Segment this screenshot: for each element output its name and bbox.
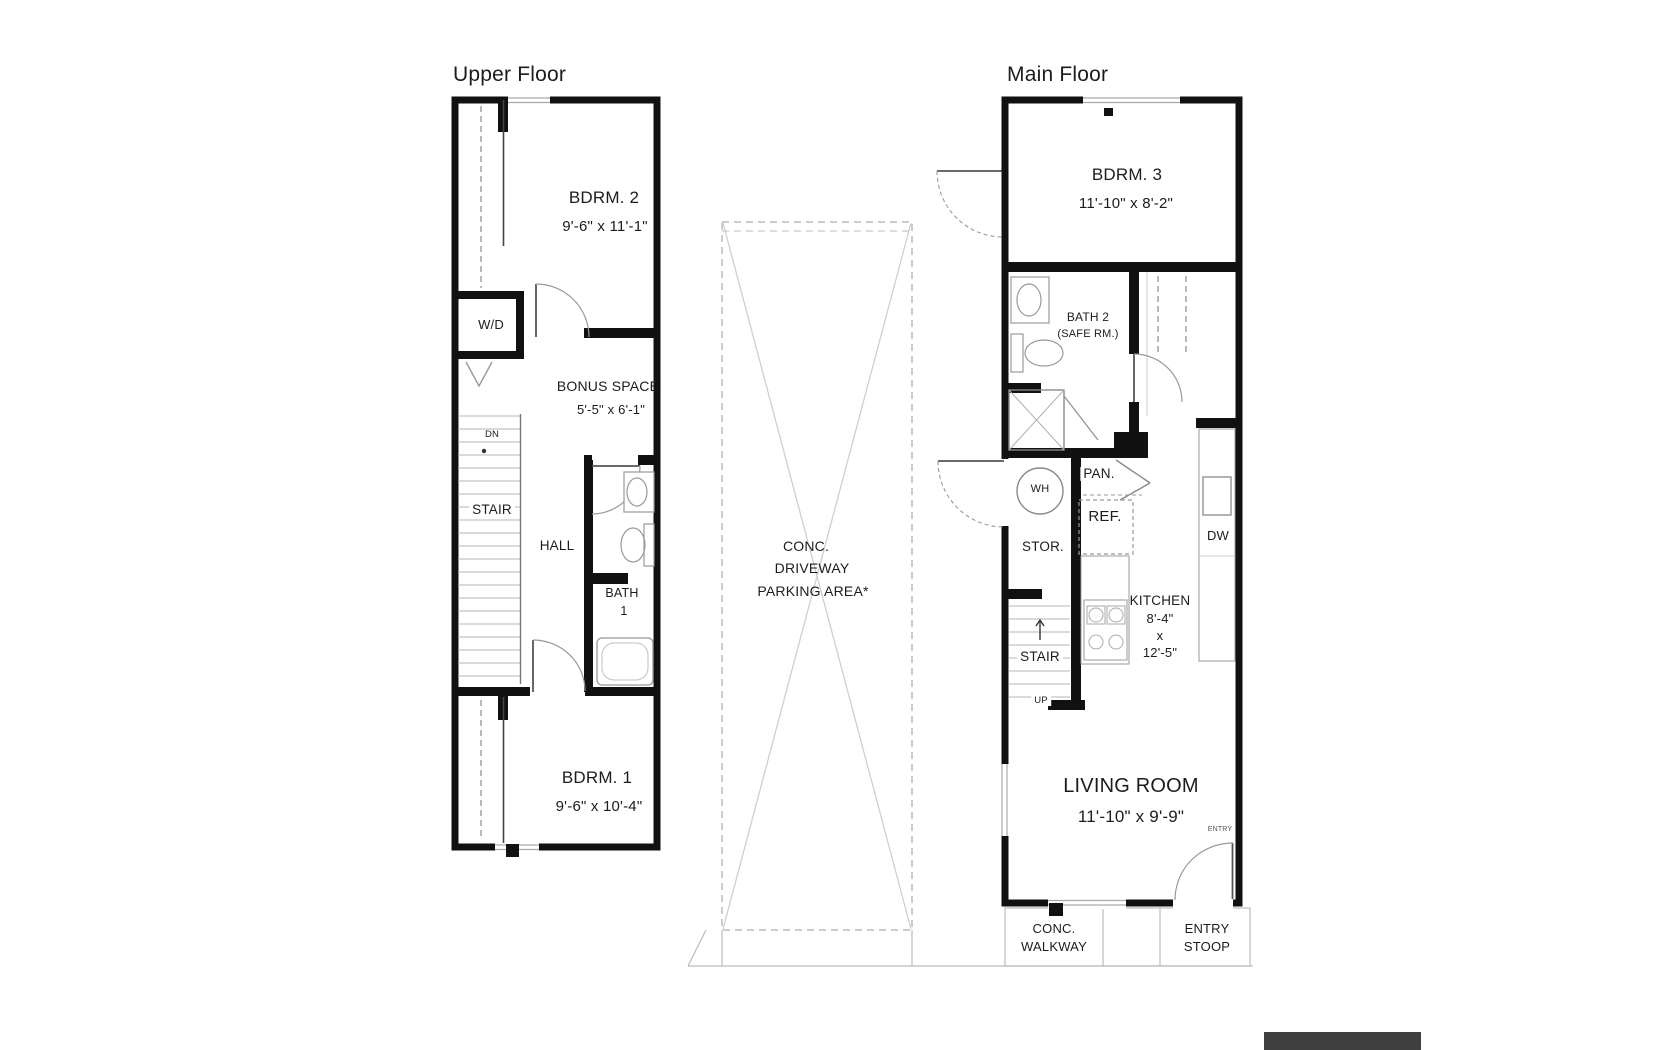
kitchen-by: x <box>1157 629 1164 642</box>
living-room-label: LIVING ROOM <box>1063 776 1199 796</box>
kitchen-width: 8'-4" <box>1147 612 1174 625</box>
driveway-label-line3: PARKING AREA* <box>757 584 868 598</box>
bath1-label: BATH <box>605 587 638 600</box>
bath2-safe-room-note: (SAFE RM.) <box>1054 329 1121 340</box>
water-heater-label: WH <box>1031 484 1050 495</box>
stair-up-label: UP <box>1031 696 1051 706</box>
bedroom3-closet <box>1147 272 1186 416</box>
upper-floor-stairs <box>458 414 521 684</box>
bdrm2-label: BDRM. 2 <box>569 189 639 206</box>
bdrm2-dimensions: 9'-6" x 11'-1" <box>562 219 648 234</box>
floor-plan-canvas: Upper Floor BDRM. 2 9'-6" x 11'-1" W/D B… <box>0 0 1680 1050</box>
bdrm3-label: BDRM. 3 <box>1092 166 1162 183</box>
shower <box>1009 390 1098 450</box>
stair-down-label: DN <box>482 430 502 440</box>
floor-plan-drawing <box>0 0 1680 1050</box>
walkway-label-line2: WALKWAY <box>1021 940 1087 953</box>
site-lines <box>688 908 1253 966</box>
bdrm1-dimensions: 9'-6" x 10'-4" <box>556 799 643 814</box>
driveway-area <box>722 222 912 930</box>
watermark-bar <box>1264 1032 1421 1050</box>
bdrm3-dimensions: 11'-10" x 8'-2" <box>1079 196 1173 211</box>
main-floor-title: Main Floor <box>1007 64 1108 85</box>
walkway-label-line1: CONC. <box>1033 922 1076 935</box>
refrigerator-label: REF. <box>1085 509 1124 524</box>
driveway-label-line2: DRIVEWAY <box>775 561 850 575</box>
entry-stoop-label-line1: ENTRY <box>1185 922 1230 935</box>
bath2-label: BATH 2 <box>1064 311 1112 323</box>
entry-label: ENTRY <box>1208 826 1233 833</box>
bath1-number: 1 <box>620 605 627 618</box>
washer-dryer-closet <box>458 291 524 386</box>
upper-floor-title: Upper Floor <box>453 64 566 85</box>
washer-dryer-label: W/D <box>478 318 504 331</box>
main-stair-label: STAIR <box>1017 650 1063 664</box>
storage-label: STOR. <box>1022 540 1064 554</box>
hall-label: HALL <box>540 539 575 553</box>
bath2-fixtures <box>1011 277 1063 372</box>
bonus-space-label: BONUS SPACE <box>557 379 659 393</box>
living-room-dimensions: 11'-10" x 9'-9" <box>1078 808 1184 825</box>
dishwasher-label: DW <box>1207 529 1229 542</box>
kitchen-length: 12'-5" <box>1143 646 1177 659</box>
bonus-space-dimensions: 5'-5" x 6'-1" <box>577 403 645 416</box>
entry-stoop-label-line2: STOOP <box>1184 940 1230 953</box>
kitchen-label: KITCHEN <box>1130 594 1191 608</box>
pantry-label: PAN. <box>1080 467 1117 481</box>
gate-door <box>937 171 1003 237</box>
upper-stair-label: STAIR <box>469 503 515 517</box>
bdrm1-label: BDRM. 1 <box>562 769 632 786</box>
driveway-label-line1: CONC. <box>783 539 829 553</box>
